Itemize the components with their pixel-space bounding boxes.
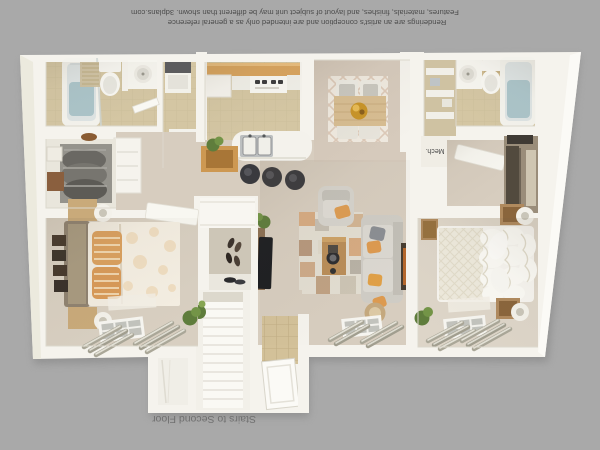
svg-text:Features, materials, finishes,: Features, materials, finishes, and layou… (131, 8, 459, 17)
svg-text:Mech.: Mech. (425, 147, 444, 154)
svg-text:Renderings are an artist's con: Renderings are an artist's conception an… (168, 18, 446, 27)
svg-text:Stairs to Second Floor: Stairs to Second Floor (152, 413, 256, 425)
